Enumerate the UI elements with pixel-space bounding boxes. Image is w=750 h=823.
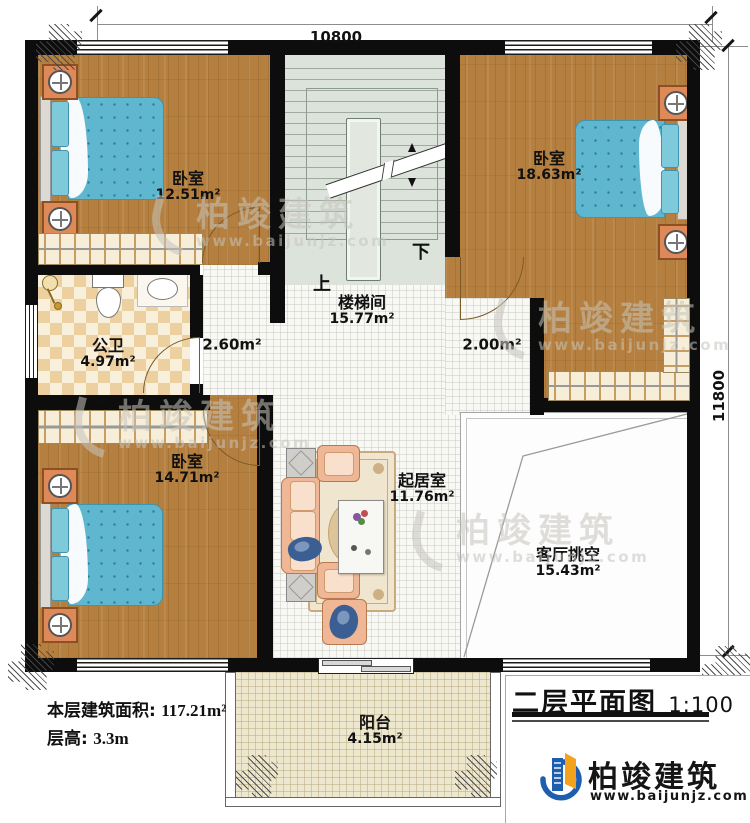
wall bbox=[228, 658, 318, 672]
toilet-tank bbox=[92, 273, 124, 288]
room-label-bathroom: 公卫4.97m² bbox=[80, 337, 135, 371]
floor-area-label: 本层建筑面积: bbox=[47, 701, 156, 721]
brand-logo-icon bbox=[534, 749, 582, 807]
lamp-icon bbox=[48, 70, 72, 94]
window bbox=[505, 40, 652, 55]
nightstand bbox=[42, 468, 78, 504]
balcony-parapet bbox=[490, 672, 501, 807]
pillow bbox=[661, 124, 679, 168]
wall bbox=[190, 275, 203, 338]
pillow bbox=[51, 101, 69, 147]
room-label-stairwell: 楼梯间15.77m² bbox=[329, 294, 394, 328]
lamp-icon bbox=[664, 230, 688, 254]
stair-down-label: 下 bbox=[412, 238, 430, 264]
balcony-parapet bbox=[225, 672, 236, 807]
bed bbox=[40, 503, 162, 606]
dimension-line-top bbox=[97, 24, 712, 25]
lamp-icon bbox=[664, 91, 688, 115]
sofa-cushion bbox=[290, 481, 316, 511]
window bbox=[77, 658, 228, 672]
wardrobe bbox=[548, 371, 690, 401]
wardrobe bbox=[663, 298, 690, 373]
stair-arrow-down-icon bbox=[408, 178, 416, 187]
floor-height-value: 3.3m bbox=[93, 729, 128, 748]
room-label-bedroom-bottom-left: 卧室14.71m² bbox=[154, 453, 219, 487]
sink-basin bbox=[147, 278, 178, 300]
wall bbox=[445, 40, 460, 257]
room-label-bedroom-top-left: 卧室12.51m² bbox=[155, 170, 220, 204]
title-rule-thin bbox=[512, 720, 709, 722]
bed bbox=[575, 118, 688, 218]
rug-corner-motif bbox=[373, 589, 384, 600]
pillow bbox=[51, 150, 69, 196]
brand-website: www.baijunjz.com bbox=[590, 789, 748, 804]
wall bbox=[25, 378, 38, 672]
stair-arrow-up-icon bbox=[408, 143, 416, 152]
dimension-line-right bbox=[728, 46, 729, 656]
wardrobe bbox=[38, 410, 208, 444]
floor-height-label: 层高: bbox=[47, 729, 88, 749]
hall-right-floor bbox=[445, 298, 530, 415]
dimension-text-top: 10800 bbox=[310, 28, 362, 46]
dimension-tick bbox=[704, 11, 717, 24]
lamp-icon bbox=[48, 613, 72, 637]
nightstand bbox=[42, 201, 78, 237]
cup bbox=[365, 549, 371, 555]
coffee-table bbox=[338, 500, 384, 574]
room-label-bedroom-top-right: 卧室18.63m² bbox=[516, 150, 581, 184]
wall bbox=[270, 40, 285, 323]
end-table bbox=[286, 448, 316, 478]
area-label-hall-left: 2.60m² bbox=[202, 337, 261, 354]
floor-area-value: 117.21m² bbox=[161, 701, 226, 720]
dimension-tick bbox=[89, 9, 102, 22]
room-label-void: 客厅挑空15.43m² bbox=[535, 546, 600, 580]
wardrobe bbox=[38, 233, 203, 265]
stair-up-label: 上 bbox=[313, 270, 331, 296]
end-table bbox=[286, 572, 316, 602]
window bbox=[77, 40, 228, 55]
armchair-cushion bbox=[324, 452, 354, 476]
dimension-text-right: 11800 bbox=[710, 370, 728, 422]
title-rule-thick bbox=[512, 712, 709, 717]
balcony-parapet bbox=[225, 797, 501, 807]
room-label-living: 起居室11.76m² bbox=[389, 472, 454, 506]
wall bbox=[258, 262, 270, 275]
sliding-door-panel bbox=[361, 666, 411, 672]
bed bbox=[40, 96, 163, 200]
pillow bbox=[51, 556, 69, 601]
pillow bbox=[661, 170, 679, 214]
cup bbox=[351, 545, 357, 551]
armchair bbox=[317, 445, 360, 482]
wall bbox=[650, 658, 700, 672]
room-label-balcony: 阳台4.15m² bbox=[347, 714, 402, 748]
floor-height-info: 层高: 3.3m bbox=[47, 724, 129, 749]
shower-head-icon bbox=[42, 275, 58, 291]
window bbox=[503, 658, 650, 672]
flower-decoration bbox=[361, 510, 368, 517]
bed-headboard bbox=[40, 96, 51, 202]
shower-knob bbox=[54, 302, 62, 310]
wall bbox=[25, 395, 210, 410]
lamp-icon bbox=[48, 207, 72, 231]
nightstand bbox=[42, 607, 78, 643]
wall bbox=[412, 658, 503, 672]
flower-decoration bbox=[358, 518, 365, 525]
void-diagonal-lines bbox=[460, 412, 688, 658]
floor-plan-canvas: 卧室12.51m² 卧室18.63m² 公卫4.97m² 楼梯间15.77m² … bbox=[0, 0, 750, 823]
floor-area-info: 本层建筑面积: 117.21m² bbox=[47, 696, 226, 721]
rug-corner-motif bbox=[373, 463, 384, 474]
area-label-hall-right: 2.00m² bbox=[462, 337, 521, 354]
bed-headboard bbox=[40, 503, 51, 608]
pillow bbox=[51, 508, 69, 553]
window bbox=[25, 305, 38, 378]
stair-center-railing bbox=[346, 118, 381, 281]
lamp-icon bbox=[48, 474, 72, 498]
balcony-sliding-door bbox=[318, 658, 414, 674]
